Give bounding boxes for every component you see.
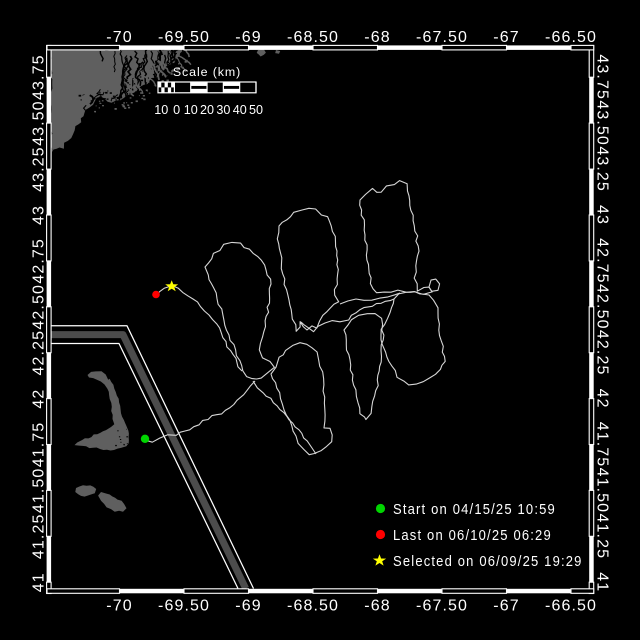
svg-text:-68.50: -68.50 xyxy=(287,29,339,46)
svg-text:-68: -68 xyxy=(364,598,390,615)
svg-text:-67: -67 xyxy=(493,29,519,46)
svg-text:40: 40 xyxy=(233,103,247,117)
svg-text:Start on 04/15/25 10:59: Start on 04/15/25 10:59 xyxy=(393,500,556,517)
svg-text:42.75: 42.75 xyxy=(594,238,611,284)
svg-text:10: 10 xyxy=(154,103,168,117)
svg-text:50: 50 xyxy=(249,103,263,117)
svg-text:0: 0 xyxy=(173,103,180,117)
svg-text:41.75: 41.75 xyxy=(594,422,611,468)
svg-text:-69.50: -69.50 xyxy=(158,598,210,615)
svg-text:41.75: 41.75 xyxy=(31,422,48,468)
svg-text:41: 41 xyxy=(594,572,611,592)
svg-text:43.50: 43.50 xyxy=(594,100,611,146)
svg-text:43.50: 43.50 xyxy=(31,100,48,146)
svg-text:-69.50: -69.50 xyxy=(158,29,210,46)
svg-text:42.25: 42.25 xyxy=(31,330,48,376)
svg-text:43.75: 43.75 xyxy=(31,54,48,100)
svg-text:-70: -70 xyxy=(106,29,132,46)
svg-text:-69: -69 xyxy=(235,598,261,615)
svg-text:-67.50: -67.50 xyxy=(416,598,468,615)
svg-text:-66.50: -66.50 xyxy=(545,29,597,46)
svg-text:42.50: 42.50 xyxy=(31,284,48,330)
svg-text:42.50: 42.50 xyxy=(594,284,611,330)
svg-text:41.50: 41.50 xyxy=(31,468,48,514)
svg-text:41.25: 41.25 xyxy=(594,514,611,560)
svg-text:42: 42 xyxy=(594,389,611,409)
svg-text:-67: -67 xyxy=(493,598,519,615)
svg-text:Scale (km): Scale (km) xyxy=(173,65,241,79)
svg-text:43.25: 43.25 xyxy=(594,146,611,192)
svg-text:41.25: 41.25 xyxy=(31,514,48,560)
svg-text:-67.50: -67.50 xyxy=(416,29,468,46)
svg-text:43: 43 xyxy=(594,205,611,225)
svg-text:41: 41 xyxy=(31,572,48,592)
svg-text:43: 43 xyxy=(31,205,48,225)
svg-text:-70: -70 xyxy=(106,598,132,615)
svg-text:41.50: 41.50 xyxy=(594,468,611,514)
svg-text:-69: -69 xyxy=(235,29,261,46)
svg-text:30: 30 xyxy=(216,103,230,117)
svg-text:42: 42 xyxy=(31,389,48,409)
svg-text:-68: -68 xyxy=(364,29,390,46)
svg-text:-68.50: -68.50 xyxy=(287,598,339,615)
svg-text:Last on 06/10/25 06:29: Last on 06/10/25 06:29 xyxy=(393,526,552,543)
svg-text:-66.50: -66.50 xyxy=(545,598,597,615)
svg-text:42.75: 42.75 xyxy=(31,238,48,284)
svg-text:42.25: 42.25 xyxy=(594,330,611,376)
svg-text:20: 20 xyxy=(200,103,214,117)
svg-text:10: 10 xyxy=(184,103,198,117)
svg-text:Selected on 06/09/25 19:29: Selected on 06/09/25 19:29 xyxy=(393,552,583,569)
svg-text:43.75: 43.75 xyxy=(594,54,611,100)
svg-text:43.25: 43.25 xyxy=(31,146,48,192)
